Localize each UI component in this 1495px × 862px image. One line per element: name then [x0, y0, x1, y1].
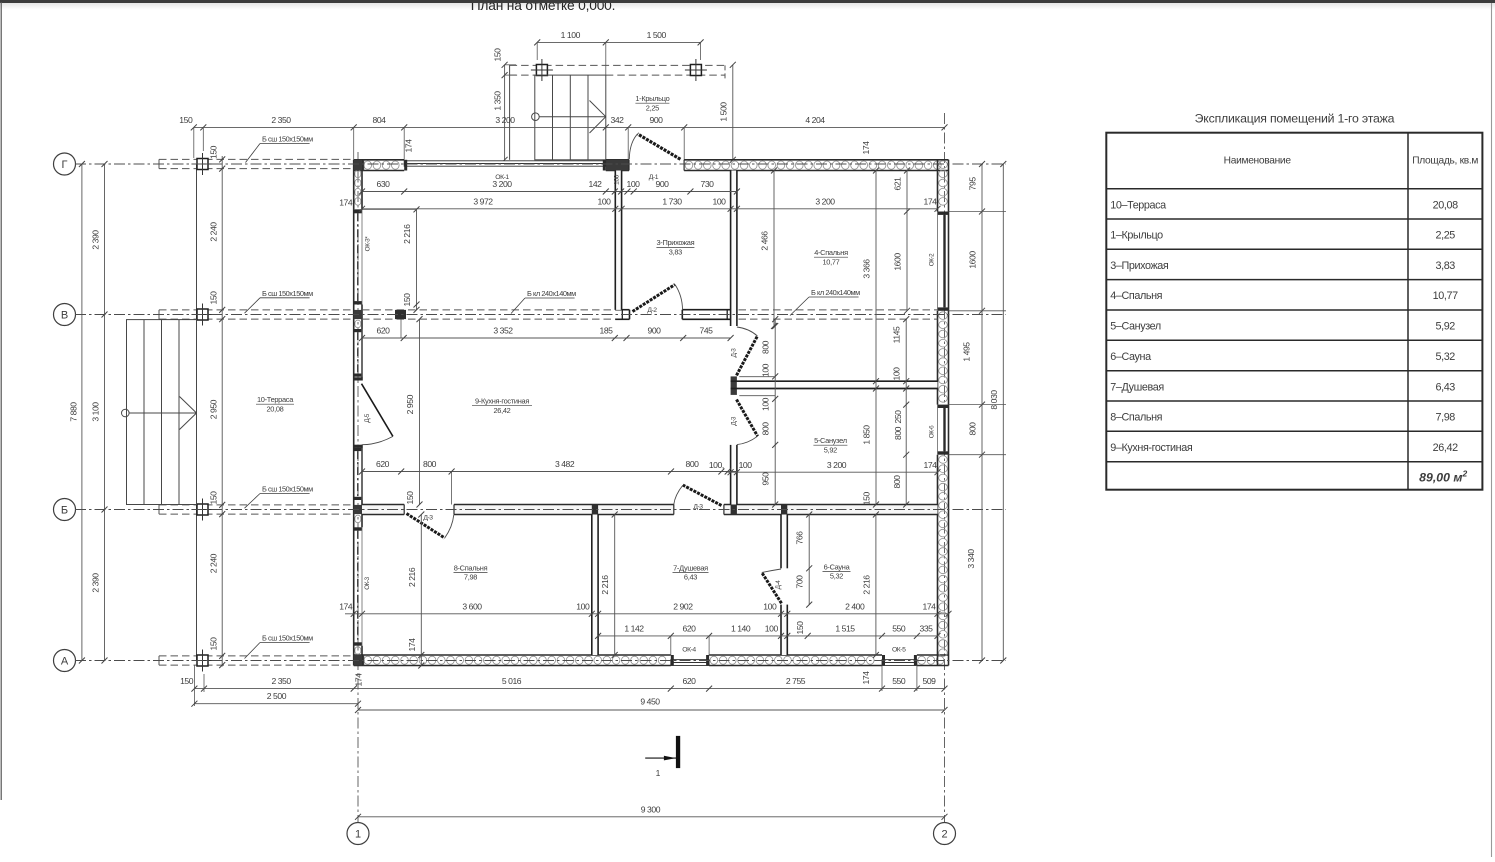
- svg-text:2 466: 2 466: [760, 231, 770, 251]
- svg-text:Д-3: Д-3: [423, 515, 433, 522]
- svg-text:1 850: 1 850: [862, 425, 872, 445]
- svg-text:8–Спальня: 8–Спальня: [1110, 412, 1162, 424]
- svg-text:150: 150: [179, 115, 193, 125]
- svg-text:9-Кухня-гостиная: 9-Кухня-гостиная: [475, 397, 529, 406]
- svg-text:804: 804: [373, 115, 387, 125]
- svg-text:900: 900: [648, 326, 662, 336]
- svg-text:2 216: 2 216: [861, 575, 871, 595]
- svg-text:1600: 1600: [893, 253, 903, 271]
- svg-text:20,08: 20,08: [267, 404, 284, 413]
- svg-text:174: 174: [924, 460, 938, 470]
- svg-text:3 340: 3 340: [966, 549, 976, 569]
- svg-text:174: 174: [407, 638, 417, 652]
- svg-text:Б: Б: [61, 504, 68, 516]
- svg-text:2 216: 2 216: [600, 575, 610, 595]
- svg-text:100: 100: [576, 601, 590, 611]
- svg-text:174: 174: [861, 141, 871, 155]
- svg-text:10-Терраса: 10-Терраса: [257, 395, 294, 404]
- svg-text:5-Санузел: 5-Санузел: [814, 436, 847, 445]
- svg-text:100: 100: [614, 174, 621, 185]
- svg-text:7,98: 7,98: [464, 573, 477, 582]
- svg-text:150: 150: [209, 637, 219, 651]
- svg-text:6–Сауна: 6–Сауна: [1110, 351, 1151, 363]
- svg-text:5,32: 5,32: [1435, 351, 1455, 363]
- svg-text:8-Спальня: 8-Спальня: [454, 563, 488, 572]
- svg-text:2 390: 2 390: [91, 230, 101, 250]
- svg-text:150: 150: [493, 48, 503, 62]
- svg-text:Д-3: Д-3: [730, 416, 737, 426]
- svg-text:3 200: 3 200: [495, 115, 515, 125]
- svg-text:100: 100: [627, 179, 641, 189]
- svg-text:6,43: 6,43: [1435, 381, 1455, 393]
- svg-text:26,42: 26,42: [494, 406, 511, 415]
- svg-text:620: 620: [683, 676, 697, 686]
- svg-text:1: 1: [656, 768, 661, 778]
- svg-text:150: 150: [209, 291, 219, 305]
- svg-text:620: 620: [683, 623, 697, 633]
- svg-text:100: 100: [713, 196, 727, 206]
- svg-text:150: 150: [862, 492, 872, 506]
- svg-text:2: 2: [941, 828, 947, 840]
- svg-text:89,00 м2: 89,00 м2: [1419, 469, 1467, 485]
- svg-text:2 216: 2 216: [402, 224, 412, 244]
- svg-text:7–Душевая: 7–Душевая: [1110, 381, 1164, 393]
- svg-text:1: 1: [355, 828, 361, 840]
- svg-text:142: 142: [589, 179, 603, 189]
- svg-text:10,77: 10,77: [823, 257, 840, 266]
- svg-text:100: 100: [761, 363, 771, 377]
- svg-text:700: 700: [795, 575, 805, 589]
- svg-text:2 216: 2 216: [407, 567, 417, 587]
- svg-text:150: 150: [180, 676, 194, 686]
- svg-text:Наименование: Наименование: [1224, 156, 1292, 167]
- svg-text:20,08: 20,08: [1433, 199, 1458, 211]
- svg-text:174: 174: [404, 139, 414, 153]
- svg-text:1 500: 1 500: [647, 30, 667, 40]
- svg-text:7-Душевая: 7-Душевая: [673, 563, 708, 572]
- svg-text:550: 550: [892, 676, 906, 686]
- svg-text:Экспликация помещений 1-го эта: Экспликация помещений 1-го этажа: [1195, 111, 1395, 125]
- svg-text:5,92: 5,92: [824, 445, 837, 454]
- svg-text:9 450: 9 450: [640, 697, 660, 707]
- svg-text:ОК-2: ОК-2: [928, 253, 935, 266]
- svg-text:2 350: 2 350: [271, 676, 291, 686]
- svg-text:ОК-5: ОК-5: [892, 646, 906, 653]
- svg-text:Б сш 150х150мм: Б сш 150х150мм: [262, 289, 313, 298]
- svg-text:6,43: 6,43: [684, 573, 697, 582]
- svg-text:2 755: 2 755: [786, 676, 806, 686]
- svg-text:745: 745: [700, 326, 714, 336]
- svg-text:100: 100: [892, 367, 902, 381]
- svg-text:2 400: 2 400: [845, 601, 865, 611]
- svg-text:174: 174: [861, 671, 871, 685]
- svg-text:3 972: 3 972: [473, 196, 493, 206]
- svg-text:1 500: 1 500: [719, 102, 729, 122]
- svg-text:2 390: 2 390: [91, 573, 101, 593]
- svg-text:174: 174: [339, 198, 353, 208]
- svg-text:ОК-4: ОК-4: [682, 646, 696, 653]
- svg-text:Б сш 150х150мм: Б сш 150х150мм: [262, 485, 313, 494]
- svg-text:1145: 1145: [892, 326, 902, 343]
- svg-text:100: 100: [739, 460, 753, 470]
- svg-text:100: 100: [761, 397, 771, 411]
- svg-text:1 142: 1 142: [624, 623, 644, 633]
- svg-text:Д-3: Д-3: [730, 348, 737, 358]
- svg-text:150: 150: [209, 491, 219, 505]
- svg-text:Д-5: Д-5: [364, 413, 371, 423]
- svg-text:5–Санузел: 5–Санузел: [1110, 321, 1161, 333]
- svg-text:ОК-6: ОК-6: [929, 425, 936, 438]
- svg-text:3,83: 3,83: [669, 248, 682, 257]
- svg-text:730: 730: [701, 179, 715, 189]
- svg-text:630: 630: [377, 179, 391, 189]
- svg-text:150: 150: [795, 621, 805, 635]
- svg-text:1-Крыльцо: 1-Крыльцо: [635, 94, 669, 103]
- svg-text:5,92: 5,92: [1435, 321, 1455, 333]
- svg-text:800: 800: [761, 422, 771, 436]
- svg-text:Д-3: Д-3: [693, 504, 703, 511]
- svg-text:621: 621: [893, 177, 903, 191]
- svg-text:2,25: 2,25: [646, 103, 659, 112]
- svg-text:185: 185: [600, 326, 614, 336]
- svg-text:509: 509: [923, 676, 937, 686]
- svg-text:2 240: 2 240: [209, 553, 219, 573]
- svg-text:Б кл 240х140мм: Б кл 240х140мм: [811, 288, 860, 297]
- svg-text:250: 250: [893, 410, 903, 424]
- svg-text:1 515: 1 515: [835, 623, 855, 633]
- svg-text:800: 800: [686, 459, 700, 469]
- svg-text:7 880: 7 880: [69, 402, 79, 422]
- svg-text:10,77: 10,77: [1433, 290, 1458, 302]
- svg-text:950: 950: [761, 472, 771, 486]
- svg-text:342: 342: [611, 115, 625, 125]
- svg-text:100,: 100,: [709, 460, 724, 470]
- svg-text:150: 150: [405, 491, 415, 505]
- svg-text:8 030: 8 030: [989, 390, 999, 410]
- svg-text:Г: Г: [62, 159, 68, 171]
- svg-text:620: 620: [377, 326, 391, 336]
- svg-text:100: 100: [598, 196, 612, 206]
- svg-text:5 016: 5 016: [502, 676, 522, 686]
- svg-text:1 495: 1 495: [962, 342, 972, 362]
- svg-text:335: 335: [920, 623, 934, 633]
- svg-text:2 350: 2 350: [271, 115, 291, 125]
- svg-text:174: 174: [354, 673, 364, 687]
- svg-text:1600: 1600: [968, 251, 978, 269]
- svg-text:1 100: 1 100: [561, 30, 581, 40]
- svg-text:2 950: 2 950: [405, 394, 415, 414]
- svg-text:3 352: 3 352: [493, 326, 513, 336]
- svg-text:3 200: 3 200: [815, 196, 835, 206]
- svg-text:766: 766: [795, 531, 805, 545]
- svg-text:800: 800: [968, 422, 978, 436]
- svg-text:Площадь, кв.м: Площадь, кв.м: [1412, 156, 1478, 167]
- svg-text:3 482: 3 482: [555, 459, 575, 469]
- svg-text:В: В: [61, 309, 68, 321]
- svg-text:3 200: 3 200: [492, 179, 512, 189]
- svg-text:Б сш 150х150мм: Б сш 150х150мм: [262, 135, 313, 144]
- svg-text:550: 550: [892, 623, 906, 633]
- svg-text:800: 800: [893, 426, 903, 440]
- svg-text:Б сш 150х150мм: Б сш 150х150мм: [262, 634, 313, 643]
- svg-text:900: 900: [656, 179, 670, 189]
- svg-text:800: 800: [423, 459, 437, 469]
- svg-text:2,25: 2,25: [1435, 230, 1455, 242]
- svg-text:Б кл 240х140мм: Б кл 240х140мм: [527, 289, 576, 298]
- svg-text:100: 100: [765, 623, 779, 633]
- svg-text:795: 795: [968, 177, 978, 191]
- svg-text:7,98: 7,98: [1435, 412, 1455, 424]
- svg-text:150: 150: [402, 293, 412, 307]
- svg-text:620: 620: [376, 459, 390, 469]
- svg-text:3 100: 3 100: [91, 402, 101, 422]
- svg-text:174: 174: [339, 601, 353, 611]
- svg-text:150: 150: [209, 145, 219, 159]
- svg-text:3,83: 3,83: [1435, 260, 1455, 272]
- svg-text:Д-2: Д-2: [647, 307, 657, 314]
- svg-text:10–Терраса: 10–Терраса: [1110, 199, 1166, 211]
- svg-text:ОК-3: ОК-3: [364, 576, 371, 589]
- svg-text:2 240: 2 240: [209, 222, 219, 242]
- svg-text:4–Спальня: 4–Спальня: [1110, 290, 1162, 302]
- svg-text:1 350: 1 350: [493, 91, 503, 111]
- svg-text:9–Кухня-гостиная: 9–Кухня-гостиная: [1110, 442, 1193, 454]
- svg-text:2 950: 2 950: [209, 399, 219, 419]
- svg-text:ОК-3*: ОК-3*: [364, 236, 371, 252]
- svg-text:2 902: 2 902: [673, 601, 693, 611]
- svg-text:174: 174: [923, 601, 937, 611]
- svg-text:900: 900: [650, 115, 664, 125]
- svg-text:3-Прихожая: 3-Прихожая: [656, 238, 694, 247]
- svg-text:3 200: 3 200: [827, 460, 847, 470]
- svg-text:3–Прихожая: 3–Прихожая: [1110, 260, 1169, 272]
- svg-text:100: 100: [763, 601, 777, 611]
- svg-text:4 204: 4 204: [805, 115, 825, 125]
- svg-text:А: А: [61, 655, 69, 667]
- svg-text:800: 800: [761, 340, 771, 354]
- svg-text:1 730: 1 730: [662, 196, 682, 206]
- svg-text:26,42: 26,42: [1433, 442, 1458, 454]
- svg-text:4-Спальня: 4-Спальня: [814, 248, 848, 257]
- svg-text:3 366: 3 366: [862, 259, 872, 279]
- svg-text:6-Сауна: 6-Сауна: [824, 562, 851, 571]
- svg-text:3 600: 3 600: [462, 601, 482, 611]
- svg-text:1–Крыльцо: 1–Крыльцо: [1110, 230, 1163, 242]
- svg-text:9 300: 9 300: [641, 804, 661, 814]
- svg-text:5,32: 5,32: [830, 572, 843, 581]
- svg-text:Д-4: Д-4: [775, 580, 782, 590]
- svg-text:2 500: 2 500: [267, 691, 287, 701]
- svg-text:174: 174: [924, 196, 938, 206]
- svg-text:800: 800: [892, 475, 902, 489]
- svg-text:1 140: 1 140: [731, 623, 751, 633]
